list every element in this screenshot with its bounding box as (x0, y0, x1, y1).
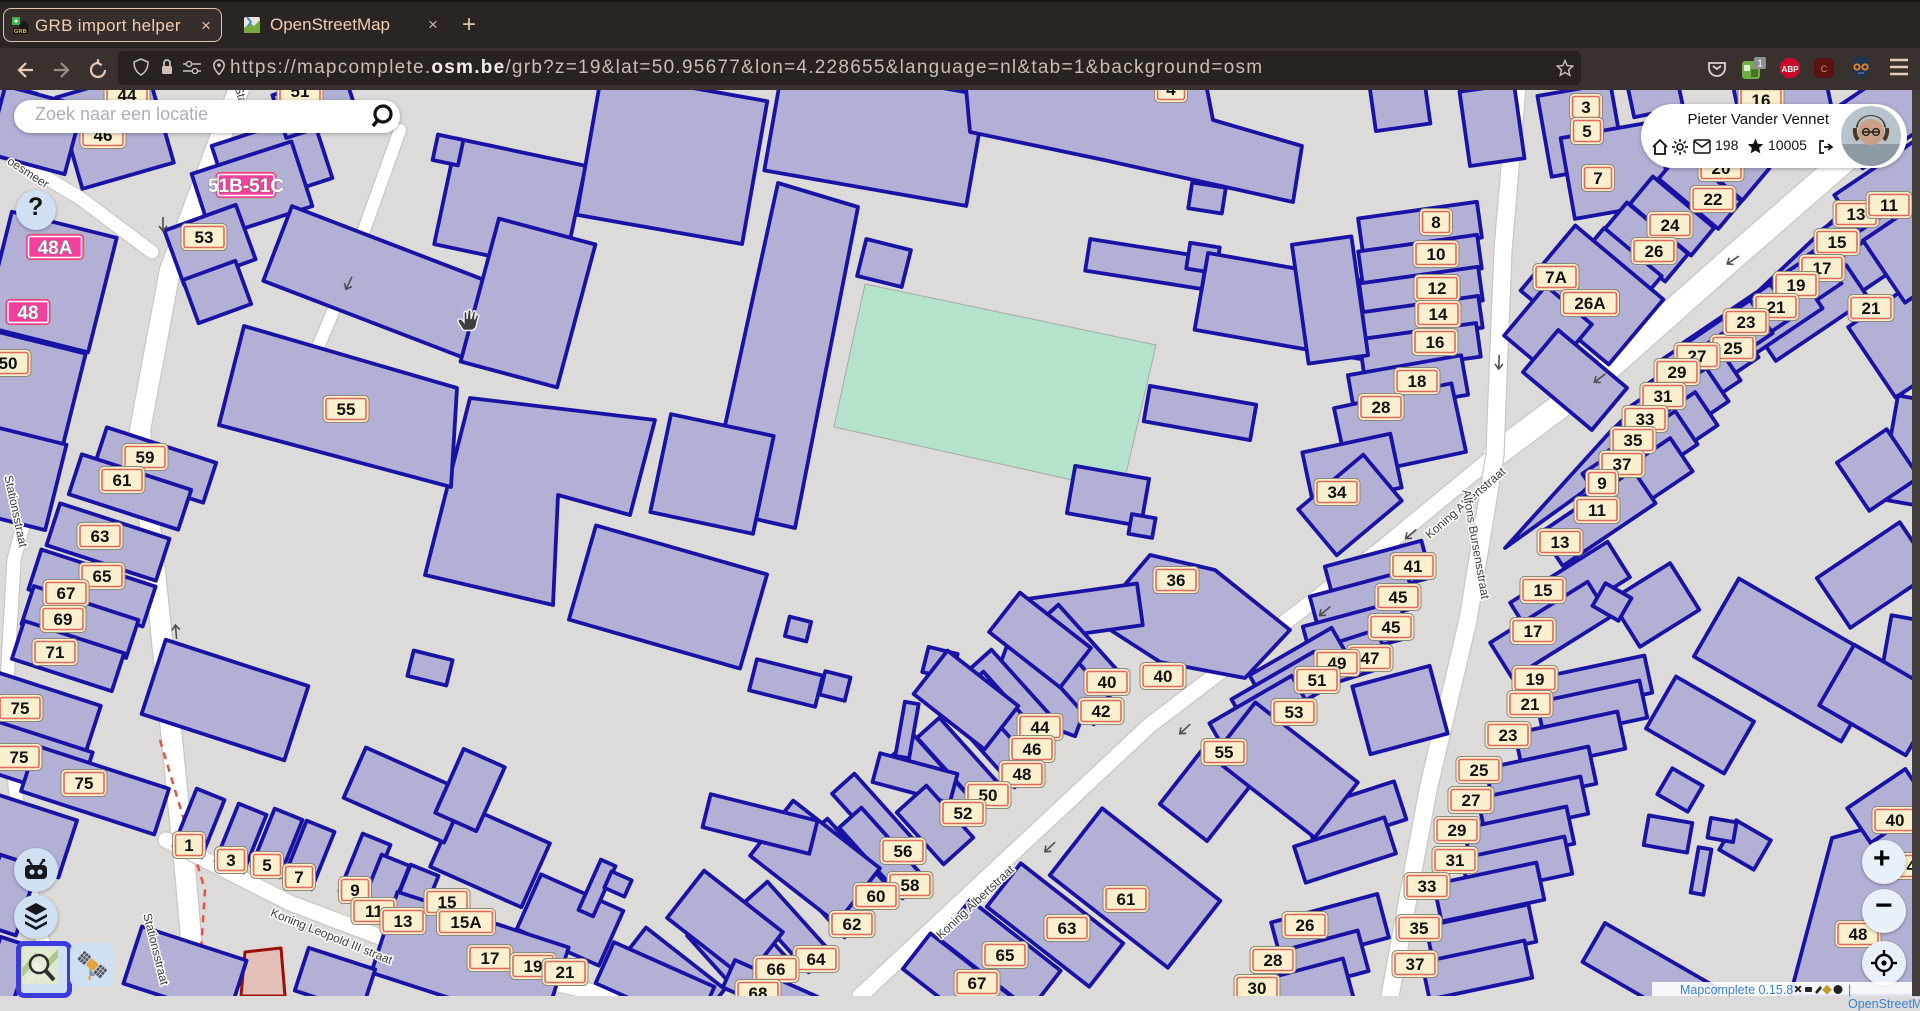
svg-text:3: 3 (226, 851, 235, 870)
svg-text:27: 27 (1462, 791, 1481, 810)
svg-text:15: 15 (1828, 233, 1847, 252)
svg-text:61: 61 (113, 471, 132, 490)
svg-text:GRB: GRB (14, 29, 27, 34)
svg-text:31: 31 (1654, 387, 1673, 406)
svg-text:45: 45 (1389, 588, 1408, 607)
svg-text:15: 15 (1534, 581, 1553, 600)
svg-text:51: 51 (1308, 671, 1327, 690)
svg-text:21: 21 (556, 963, 575, 982)
svg-text:28: 28 (1372, 398, 1391, 417)
svg-text:5: 5 (262, 856, 271, 875)
svg-text:46: 46 (1023, 740, 1042, 759)
svg-text:62: 62 (843, 915, 862, 934)
svg-text:58: 58 (901, 876, 920, 895)
svg-text:75: 75 (75, 774, 94, 793)
svg-text:13: 13 (1551, 533, 1570, 552)
svg-text:11: 11 (1588, 501, 1606, 520)
svg-text:35: 35 (1624, 431, 1643, 450)
svg-text:8: 8 (1431, 213, 1440, 232)
svg-text:65: 65 (93, 567, 112, 586)
svg-text:13: 13 (1847, 205, 1866, 224)
svg-text:48: 48 (17, 303, 38, 324)
svg-text:59: 59 (136, 448, 155, 467)
svg-text:33: 33 (1418, 877, 1437, 896)
svg-text:26: 26 (1296, 916, 1315, 935)
svg-text:64: 64 (807, 950, 826, 969)
svg-text:34: 34 (1328, 483, 1347, 502)
svg-text:1: 1 (1757, 59, 1763, 70)
svg-text:60: 60 (867, 887, 886, 906)
svg-text:17: 17 (1524, 622, 1543, 641)
svg-text:5: 5 (1582, 122, 1591, 141)
svg-text:52: 52 (954, 804, 973, 823)
svg-text:48: 48 (1013, 765, 1032, 784)
svg-text:18: 18 (1408, 372, 1427, 391)
svg-text:56: 56 (894, 842, 913, 861)
svg-text:55: 55 (337, 400, 356, 419)
svg-text:42: 42 (1092, 702, 1111, 721)
svg-text:36: 36 (1167, 571, 1186, 590)
svg-text:25: 25 (1470, 761, 1489, 780)
svg-text:45: 45 (1382, 618, 1401, 637)
svg-text:61: 61 (1117, 890, 1136, 909)
svg-text:68: 68 (749, 984, 768, 996)
svg-text:14: 14 (1429, 305, 1448, 324)
svg-text:9: 9 (1597, 474, 1606, 493)
svg-text:41: 41 (1404, 557, 1423, 576)
svg-text:30: 30 (1248, 979, 1267, 996)
svg-text:40: 40 (1098, 673, 1117, 692)
svg-text:25: 25 (1724, 339, 1743, 358)
svg-text:11: 11 (1880, 196, 1898, 215)
svg-text:40: 40 (1154, 667, 1173, 686)
svg-text:13: 13 (394, 912, 413, 931)
svg-text:71: 71 (46, 643, 65, 662)
svg-text:19: 19 (1526, 670, 1545, 689)
svg-text:12: 12 (1428, 279, 1447, 298)
svg-text:37: 37 (1406, 955, 1425, 974)
svg-text:21: 21 (1862, 299, 1881, 318)
svg-text:22: 22 (1704, 190, 1723, 209)
svg-text:29: 29 (1668, 363, 1687, 382)
svg-text:63: 63 (1058, 919, 1077, 938)
svg-text:47: 47 (1361, 649, 1380, 668)
svg-text:53: 53 (195, 228, 214, 247)
svg-text:35: 35 (1410, 919, 1429, 938)
svg-text:16: 16 (1426, 333, 1445, 352)
svg-text:53: 53 (1285, 703, 1304, 722)
svg-text:40: 40 (1886, 811, 1905, 830)
svg-text:7: 7 (1593, 169, 1602, 188)
svg-text:10: 10 (1427, 245, 1446, 264)
svg-text:21: 21 (1521, 695, 1540, 714)
svg-text:48: 48 (1849, 925, 1868, 944)
svg-text:75: 75 (11, 699, 30, 718)
svg-text:19: 19 (524, 957, 543, 976)
svg-text:65: 65 (996, 946, 1015, 965)
svg-text:7A: 7A (1545, 268, 1567, 287)
svg-text:28: 28 (1264, 951, 1283, 970)
svg-text:26: 26 (1645, 242, 1664, 261)
svg-text:44: 44 (1031, 718, 1050, 737)
svg-text:69: 69 (54, 610, 73, 629)
svg-text:66: 66 (767, 960, 786, 979)
svg-text:31: 31 (1446, 851, 1465, 870)
svg-text:17: 17 (481, 949, 500, 968)
svg-text:1: 1 (184, 836, 193, 855)
svg-text:23: 23 (1499, 726, 1518, 745)
svg-text:63: 63 (91, 527, 110, 546)
svg-text:23: 23 (1737, 313, 1756, 332)
svg-text:26A: 26A (1574, 294, 1605, 313)
svg-text:15A: 15A (450, 913, 481, 932)
svg-text:48A: 48A (38, 238, 73, 259)
svg-text:55: 55 (1215, 743, 1234, 762)
svg-text:29: 29 (1448, 821, 1467, 840)
svg-text:75: 75 (10, 748, 29, 767)
svg-text:51B-51C: 51B-51C (208, 176, 284, 197)
svg-text:C: C (1821, 64, 1828, 74)
svg-text:67: 67 (57, 584, 76, 603)
svg-text:3: 3 (1581, 98, 1590, 117)
svg-text:ABP: ABP (1782, 65, 1800, 74)
svg-text:50: 50 (0, 354, 17, 373)
svg-text:7: 7 (294, 868, 303, 887)
svg-text:19: 19 (1787, 276, 1806, 295)
svg-text:67: 67 (968, 974, 987, 993)
svg-text:24: 24 (1661, 216, 1680, 235)
